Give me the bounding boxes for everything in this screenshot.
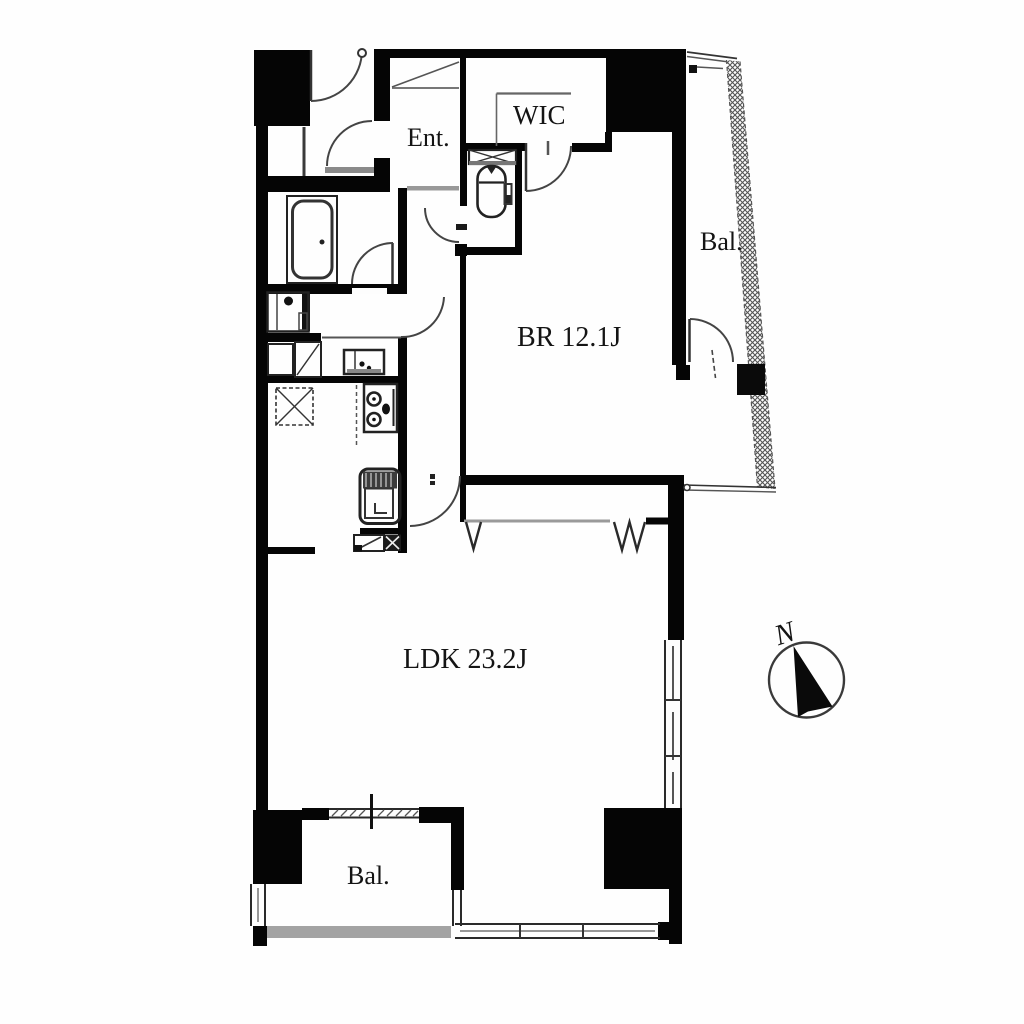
svg-text:LDK 23.2J: LDK 23.2J: [403, 644, 528, 675]
svg-text:BR 12.1J: BR 12.1J: [517, 322, 621, 353]
svg-text:Bal.: Bal.: [347, 861, 390, 890]
svg-text:Ent.: Ent.: [407, 123, 450, 152]
svg-text:WIC: WIC: [513, 100, 565, 130]
svg-text:Bal.: Bal.: [700, 227, 743, 256]
